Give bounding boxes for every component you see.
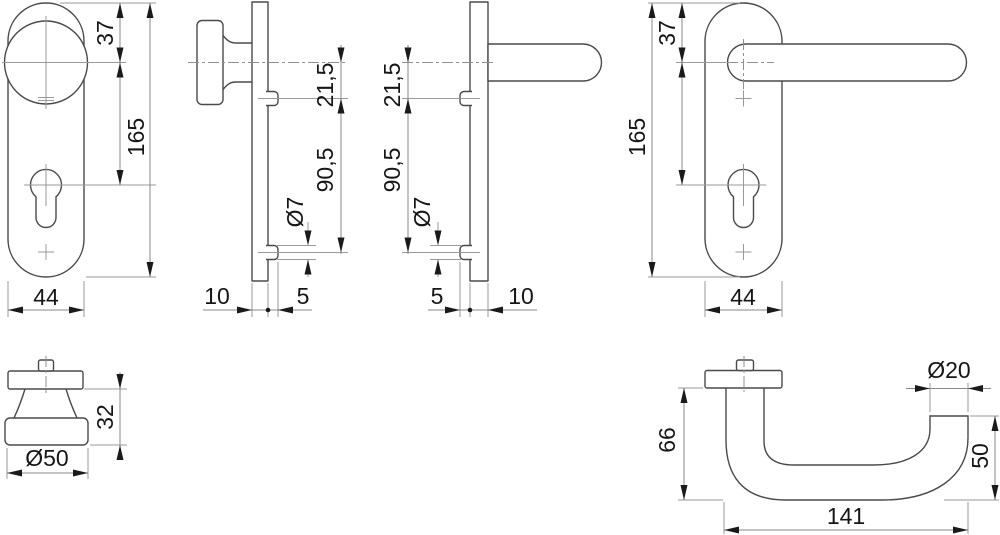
lever-inner-profile xyxy=(764,388,930,465)
technical-drawing-sheet: 37 165 44 xyxy=(0,0,1000,535)
dim-label-top-to-lever: 37 xyxy=(654,20,680,46)
dim-label-plate-thickness: 10 xyxy=(508,283,534,309)
plate-side-outline xyxy=(252,2,268,281)
knob-head xyxy=(5,418,88,445)
dim-label-knob-diameter: Ø50 xyxy=(25,445,68,471)
dim-label-boss-projection: 5 xyxy=(431,283,444,309)
dim-label-grip-diameter: Ø20 xyxy=(927,357,970,383)
dim-label-lever-to-screw: 21,5 xyxy=(379,63,405,108)
lever-outer-profile xyxy=(726,388,968,500)
spindle-nub xyxy=(737,360,754,371)
drawing-svg: 37 165 44 xyxy=(0,0,1000,535)
dim-label-plate-thickness: 10 xyxy=(204,283,230,309)
dim-label-plate-height: 165 xyxy=(624,118,650,156)
dim-label-boss-diameter: Ø7 xyxy=(409,197,435,228)
dim-label-plate-width: 44 xyxy=(33,284,59,310)
plate-side-outline xyxy=(470,2,488,281)
dim-label-screw-spacing: 90,5 xyxy=(312,148,338,193)
dim-label-boss-diameter: Ø7 xyxy=(282,197,308,228)
figure-lever-plate-side: 21,5 90,5 Ø7 5 10 xyxy=(379,2,601,317)
figure-knob-plate-front: 37 165 44 xyxy=(2,3,156,317)
dim-label-lever-projection: 66 xyxy=(654,427,680,453)
dim-label-knob-to-screw: 21,5 xyxy=(312,63,338,108)
figure-knob-detail: 32 Ø50 xyxy=(5,356,127,479)
dim-label-lever-length: 141 xyxy=(827,503,865,529)
dim-label-boss-projection: 5 xyxy=(297,283,310,309)
dim-label-top-to-knob: 37 xyxy=(92,20,118,46)
dim-label-knob-height: 32 xyxy=(92,404,118,430)
lever-grip-side xyxy=(488,44,601,81)
dim-label-plate-width: 44 xyxy=(730,284,756,310)
dim-label-plate-height: 165 xyxy=(123,118,149,156)
figure-knob-plate-side: 21,5 90,5 Ø7 10 5 xyxy=(188,2,348,317)
figure-lever-detail: 66 Ø20 50 141 xyxy=(654,356,999,534)
figure-lever-plate-front: 37 165 44 xyxy=(624,3,967,317)
knob-neck-profile xyxy=(14,389,77,418)
dim-label-end-height: 50 xyxy=(967,443,993,469)
dim-label-screw-spacing: 90,5 xyxy=(379,148,405,193)
